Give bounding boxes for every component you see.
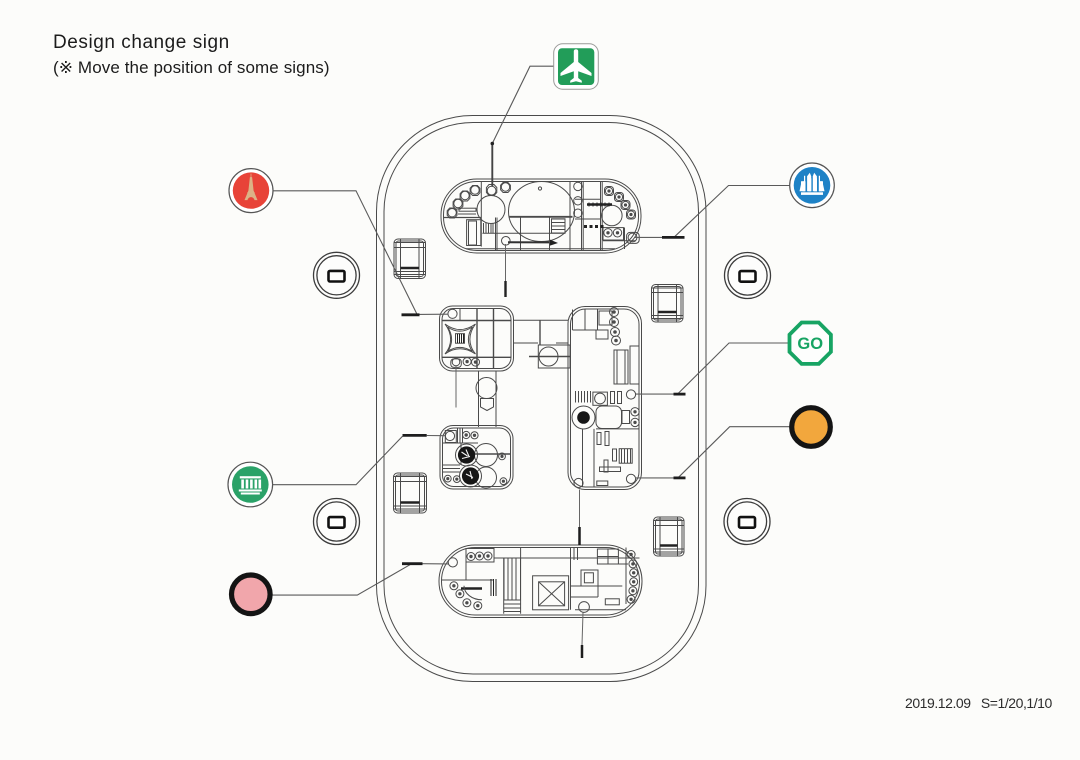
svg-text:GO: GO	[797, 335, 823, 353]
